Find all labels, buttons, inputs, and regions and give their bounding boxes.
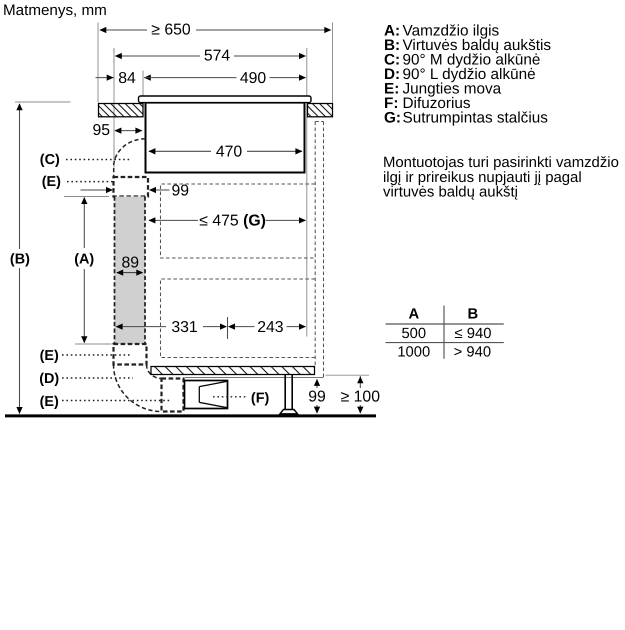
svg-text:(C): (C) (40, 152, 60, 168)
svg-text:Matmenys, mm: Matmenys, mm (3, 2, 107, 19)
svg-text:≤ 940: ≤ 940 (455, 326, 492, 342)
svg-text:B: B (467, 306, 478, 322)
svg-text:(D): (D) (39, 371, 59, 387)
svg-text:≥ 650: ≥ 650 (151, 22, 191, 39)
svg-text:84: 84 (118, 70, 136, 87)
svg-text:574: 574 (204, 48, 231, 65)
svg-text:> 940: > 940 (454, 345, 491, 361)
svg-text:89: 89 (122, 254, 140, 271)
svg-text:(E): (E) (40, 348, 59, 364)
svg-text:1000: 1000 (397, 345, 430, 361)
svg-text:A: A (408, 306, 419, 322)
svg-text:470: 470 (216, 143, 243, 160)
svg-text:(B): (B) (10, 252, 30, 268)
svg-text:331: 331 (171, 319, 198, 336)
svg-text:virtuvės baldų aukštį: virtuvės baldų aukštį (383, 184, 518, 200)
svg-text:(A): (A) (74, 252, 94, 268)
svg-text:ilgį ir prireikus nupjauti jį: ilgį ir prireikus nupjauti jį pagal (383, 170, 582, 186)
svg-text:243: 243 (257, 319, 284, 336)
svg-text:(E): (E) (40, 394, 59, 410)
svg-text:500: 500 (401, 326, 426, 342)
svg-text:≥ 100: ≥ 100 (341, 389, 381, 406)
svg-text:G:Sutrumpintas stalčius: G:Sutrumpintas stalčius (384, 110, 548, 127)
svg-text:490: 490 (240, 70, 267, 87)
svg-text:99: 99 (172, 182, 190, 199)
svg-text:Montuotojas turi pasirinkti va: Montuotojas turi pasirinkti vamzdžio (383, 155, 619, 171)
svg-text:≤ 475 (G): ≤ 475 (G) (199, 213, 266, 230)
svg-text:(E): (E) (42, 174, 61, 190)
svg-text:95: 95 (93, 122, 111, 139)
svg-text:99: 99 (308, 389, 326, 406)
svg-text:(F): (F) (251, 390, 270, 406)
